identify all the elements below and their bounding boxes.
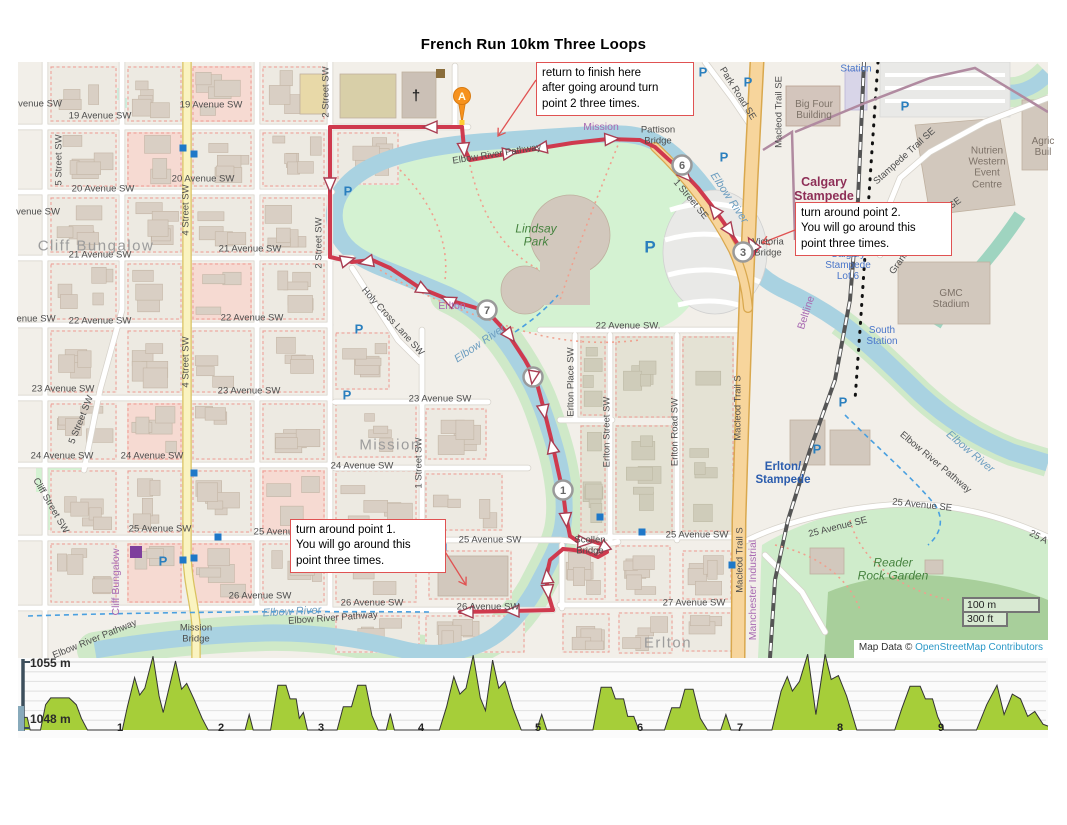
km-mark-8: 8 (837, 722, 843, 734)
scale-bar: 100 m 300 ft (962, 597, 1040, 627)
transit-stop-dot (597, 514, 604, 521)
transit-stop-dot (191, 555, 198, 562)
km-mark-5: 5 (535, 722, 541, 734)
transit-stop-dot (180, 557, 187, 564)
page: { "title": "French Run 10km Three Loops"… (0, 0, 1067, 825)
km-mark-3: 3 (318, 722, 324, 734)
scale-metric: 100 m (962, 597, 1040, 613)
route-marker-3: 3 (734, 243, 753, 262)
transit-stop-dot (180, 145, 187, 152)
map-canvas[interactable]: 1367A (0, 0, 1067, 825)
elevation-chart (18, 654, 1048, 738)
svg-text:3: 3 (740, 247, 746, 259)
transit-stop-dot (729, 562, 736, 569)
km-mark-4: 4 (418, 722, 424, 734)
km-mark-9: 9 (938, 722, 944, 734)
km-mark-7: 7 (737, 722, 743, 734)
elevation-min-label: 1048 m (30, 712, 71, 726)
attribution-prefix: Map Data © (859, 642, 913, 653)
route-marker-6: 6 (673, 156, 692, 175)
route-marker-1: 1 (554, 481, 573, 500)
km-mark-2: 2 (218, 722, 224, 734)
transit-stop-dot (191, 151, 198, 158)
attribution-link[interactable]: OpenStreetMap Contributors (915, 642, 1043, 653)
svg-text:7: 7 (484, 305, 490, 317)
svg-text:A: A (458, 91, 466, 103)
transit-stop-dot (639, 529, 646, 536)
scale-imperial: 300 ft (962, 613, 1008, 627)
svg-text:1: 1 (560, 485, 566, 497)
finish-note: return to finish here after going around… (536, 62, 694, 116)
route-marker-7: 7 (478, 301, 497, 320)
km-mark-1: 1 (117, 722, 123, 734)
km-mark-6: 6 (637, 722, 643, 734)
svg-text:6: 6 (679, 160, 685, 172)
attribution: Map Data © OpenStreetMap Contributors (854, 640, 1048, 658)
elevation-max-label: 1055 m (30, 656, 71, 670)
route-circled-arrow (524, 368, 543, 387)
transit-stop-dot (215, 534, 222, 541)
turn-point-2-note: turn around point 2. You will go around … (795, 202, 952, 256)
turn-point-1-note: turn around point 1. You will go around … (290, 519, 446, 573)
transit-stop-dot (191, 470, 198, 477)
